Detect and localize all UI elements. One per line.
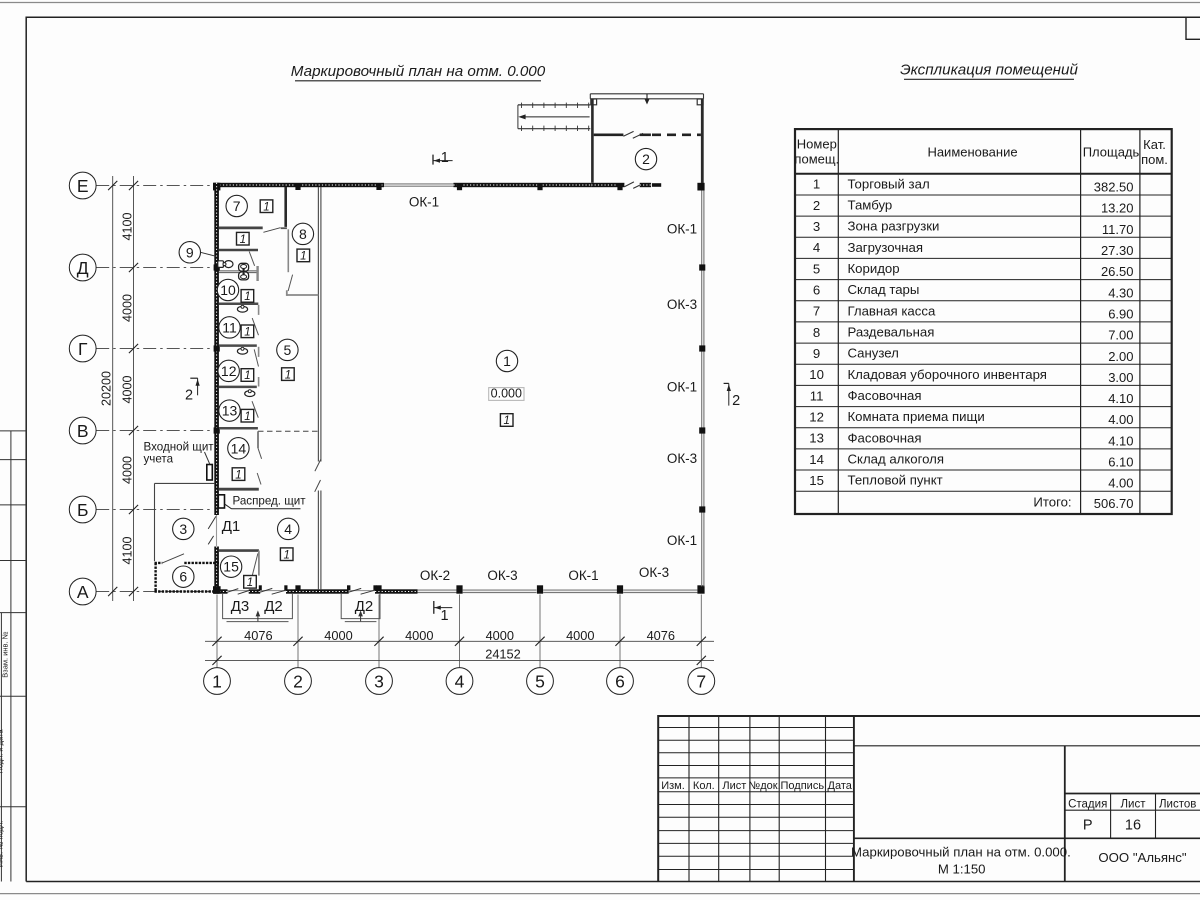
svg-text:5: 5: [813, 261, 820, 276]
svg-text:4000: 4000: [120, 375, 134, 403]
svg-text:7: 7: [696, 671, 706, 691]
svg-text:ОК-3: ОК-3: [667, 451, 697, 466]
svg-text:Раздевальная: Раздевальная: [848, 325, 935, 340]
svg-text:7: 7: [233, 198, 241, 214]
svg-text:Д: Д: [77, 258, 89, 278]
svg-text:Стадия: Стадия: [1068, 798, 1107, 810]
svg-text:ОК-1: ОК-1: [667, 222, 697, 237]
svg-text:Маркировочный план на отм. 0.0: Маркировочный план на отм. 0.000: [291, 63, 546, 80]
svg-text:Экспликация помещений: Экспликация помещений: [900, 62, 1078, 79]
svg-text:1: 1: [247, 577, 253, 589]
svg-text:15: 15: [809, 473, 824, 488]
svg-text:Подп. и дата: Подп. и дата: [0, 729, 4, 774]
svg-text:24152: 24152: [485, 646, 521, 661]
svg-text:6.10: 6.10: [1108, 455, 1133, 470]
svg-text:1: 1: [244, 291, 250, 303]
svg-text:учета: учета: [144, 453, 174, 466]
svg-text:11: 11: [222, 319, 237, 335]
svg-text:20200: 20200: [99, 371, 113, 406]
svg-text:4000: 4000: [324, 628, 352, 643]
svg-text:Коридор: Коридор: [848, 261, 900, 276]
svg-text:Взам. инв. №: Взам. инв. №: [0, 631, 9, 677]
svg-text:11: 11: [810, 388, 824, 403]
svg-text:4.10: 4.10: [1108, 391, 1133, 406]
svg-text:Загрузочная: Загрузочная: [848, 240, 923, 255]
svg-text:1: 1: [212, 671, 222, 691]
svg-text:1: 1: [441, 608, 449, 624]
svg-text:Листов: Листов: [1159, 798, 1196, 810]
svg-text:2: 2: [813, 198, 820, 213]
svg-text:Санузел: Санузел: [848, 346, 899, 361]
svg-text:1: 1: [441, 150, 449, 166]
svg-text:2: 2: [293, 671, 303, 691]
svg-text:4: 4: [284, 521, 292, 537]
svg-text:15: 15: [223, 559, 239, 575]
svg-text:Распред. щит: Распред. щит: [233, 495, 307, 508]
svg-text:4000: 4000: [405, 628, 433, 643]
svg-text:9: 9: [186, 244, 194, 260]
svg-text:ОК-2: ОК-2: [420, 568, 450, 583]
svg-text:10: 10: [809, 367, 824, 382]
svg-text:Д1: Д1: [222, 518, 241, 535]
svg-text:9: 9: [813, 346, 820, 361]
svg-text:ОК-3: ОК-3: [667, 297, 697, 312]
svg-text:2: 2: [642, 151, 650, 167]
svg-text:Б: Б: [77, 500, 88, 520]
svg-text:Р: Р: [1083, 818, 1093, 834]
svg-text:12: 12: [221, 363, 237, 379]
svg-text:ООО "Альянс": ООО "Альянс": [1098, 850, 1186, 865]
svg-text:4100: 4100: [120, 212, 134, 240]
svg-text:ОК-3: ОК-3: [487, 568, 517, 583]
svg-text:Комната приема пищи: Комната приема пищи: [848, 409, 985, 424]
svg-text:А: А: [77, 582, 89, 602]
svg-text:1: 1: [285, 369, 291, 381]
svg-text:Тепловой пункт: Тепловой пункт: [848, 473, 943, 488]
svg-text:1: 1: [244, 370, 250, 382]
svg-text:Наименование: Наименование: [927, 144, 1017, 159]
svg-text:1: 1: [300, 251, 306, 263]
svg-text:1: 1: [240, 234, 246, 246]
svg-text:Тамбур: Тамбур: [848, 198, 893, 213]
svg-text:Склад тары: Склад тары: [848, 282, 920, 297]
svg-text:11.70: 11.70: [1102, 222, 1134, 237]
svg-text:Кол.: Кол.: [693, 780, 715, 792]
svg-text:Фасовочная: Фасовочная: [848, 388, 922, 403]
svg-text:Е: Е: [77, 176, 89, 196]
svg-text:помещ.: помещ.: [794, 151, 839, 166]
svg-text:Д3: Д3: [231, 598, 250, 615]
svg-text:4000: 4000: [120, 294, 134, 322]
svg-text:2.00: 2.00: [1108, 349, 1133, 364]
svg-text:6: 6: [813, 282, 820, 297]
svg-text:4000: 4000: [486, 628, 514, 643]
svg-text:№док.: №док.: [748, 780, 780, 792]
svg-text:Инв. № подл.: Инв. № подл.: [0, 821, 4, 868]
svg-text:13.20: 13.20: [1101, 201, 1134, 216]
svg-text:Д2: Д2: [355, 598, 374, 615]
svg-text:Лист: Лист: [722, 780, 746, 792]
svg-text:2: 2: [732, 393, 740, 409]
svg-text:Лист: Лист: [1121, 798, 1147, 810]
svg-text:8: 8: [813, 325, 820, 340]
svg-text:Главная касса: Главная касса: [848, 303, 936, 318]
svg-text:4.00: 4.00: [1108, 476, 1133, 491]
svg-text:12: 12: [809, 409, 824, 424]
svg-text:4076: 4076: [244, 628, 272, 643]
svg-text:7: 7: [813, 304, 820, 319]
svg-text:Итого:: Итого:: [1033, 495, 1071, 510]
svg-text:6: 6: [179, 569, 187, 585]
svg-text:8: 8: [299, 226, 307, 242]
svg-text:Изм.: Изм.: [661, 780, 685, 792]
svg-text:5: 5: [535, 671, 545, 691]
svg-text:2: 2: [185, 388, 193, 404]
svg-text:В: В: [77, 421, 89, 441]
svg-text:1: 1: [244, 327, 250, 339]
svg-text:1: 1: [235, 469, 241, 481]
svg-text:3: 3: [374, 671, 384, 691]
svg-text:Подпись: Подпись: [781, 780, 825, 792]
svg-text:3: 3: [179, 521, 187, 537]
svg-text:4100: 4100: [120, 536, 134, 564]
svg-text:ОК-3: ОК-3: [639, 565, 669, 580]
svg-text:4.10: 4.10: [1108, 433, 1133, 448]
svg-text:1: 1: [263, 201, 269, 213]
svg-text:26.50: 26.50: [1101, 264, 1134, 279]
svg-text:ОК-1: ОК-1: [568, 568, 598, 583]
svg-text:ОК-1: ОК-1: [667, 533, 697, 548]
svg-text:Торговый зал: Торговый зал: [848, 176, 930, 191]
svg-text:14: 14: [231, 440, 247, 456]
svg-text:Кладовая уборочного инвентаря: Кладовая уборочного инвентаря: [848, 367, 1047, 382]
svg-text:Д2: Д2: [264, 598, 283, 615]
svg-text:27.30: 27.30: [1101, 243, 1134, 258]
svg-text:4000: 4000: [120, 456, 134, 484]
svg-text:382.50: 382.50: [1094, 179, 1134, 194]
svg-text:М 1:150: М 1:150: [938, 862, 986, 877]
svg-text:13: 13: [222, 403, 238, 419]
svg-text:7.00: 7.00: [1108, 328, 1133, 343]
svg-text:3: 3: [813, 219, 820, 234]
svg-text:0.000: 0.000: [491, 387, 522, 401]
svg-text:6.90: 6.90: [1108, 306, 1133, 321]
svg-text:10: 10: [220, 282, 236, 298]
svg-text:16: 16: [1125, 818, 1141, 834]
svg-text:1: 1: [244, 411, 250, 423]
svg-text:ОК-1: ОК-1: [667, 380, 697, 395]
svg-text:14: 14: [809, 452, 824, 467]
svg-text:пом.: пом.: [1141, 152, 1168, 167]
svg-text:Зона разгрузки: Зона разгрузки: [848, 219, 940, 234]
svg-text:1: 1: [503, 353, 511, 369]
svg-text:1: 1: [813, 177, 820, 192]
svg-text:6: 6: [615, 671, 625, 691]
svg-text:4: 4: [813, 240, 820, 255]
svg-text:4.00: 4.00: [1108, 412, 1133, 427]
svg-text:1: 1: [503, 415, 509, 427]
svg-text:4: 4: [455, 671, 465, 691]
svg-text:ОК-1: ОК-1: [409, 195, 439, 210]
svg-text:Дата: Дата: [828, 780, 853, 792]
svg-text:Фасовочная: Фасовочная: [848, 430, 922, 445]
svg-text:Площадь: Площадь: [1083, 144, 1140, 159]
svg-text:Склад алкоголя: Склад алкоголя: [848, 451, 945, 466]
svg-text:Маркировочный план на отм. 0.0: Маркировочный план на отм. 0.000.: [851, 845, 1071, 860]
svg-text:Г: Г: [78, 339, 88, 359]
svg-text:5: 5: [284, 342, 292, 358]
svg-text:Номер: Номер: [797, 137, 837, 152]
svg-text:4000: 4000: [566, 628, 594, 643]
svg-text:Кат.: Кат.: [1143, 137, 1166, 152]
svg-text:4076: 4076: [647, 628, 675, 643]
svg-text:4.30: 4.30: [1108, 285, 1133, 300]
svg-text:3.00: 3.00: [1108, 370, 1133, 385]
svg-text:13: 13: [809, 431, 824, 446]
svg-text:1: 1: [283, 549, 289, 561]
svg-text:506.70: 506.70: [1094, 496, 1134, 511]
